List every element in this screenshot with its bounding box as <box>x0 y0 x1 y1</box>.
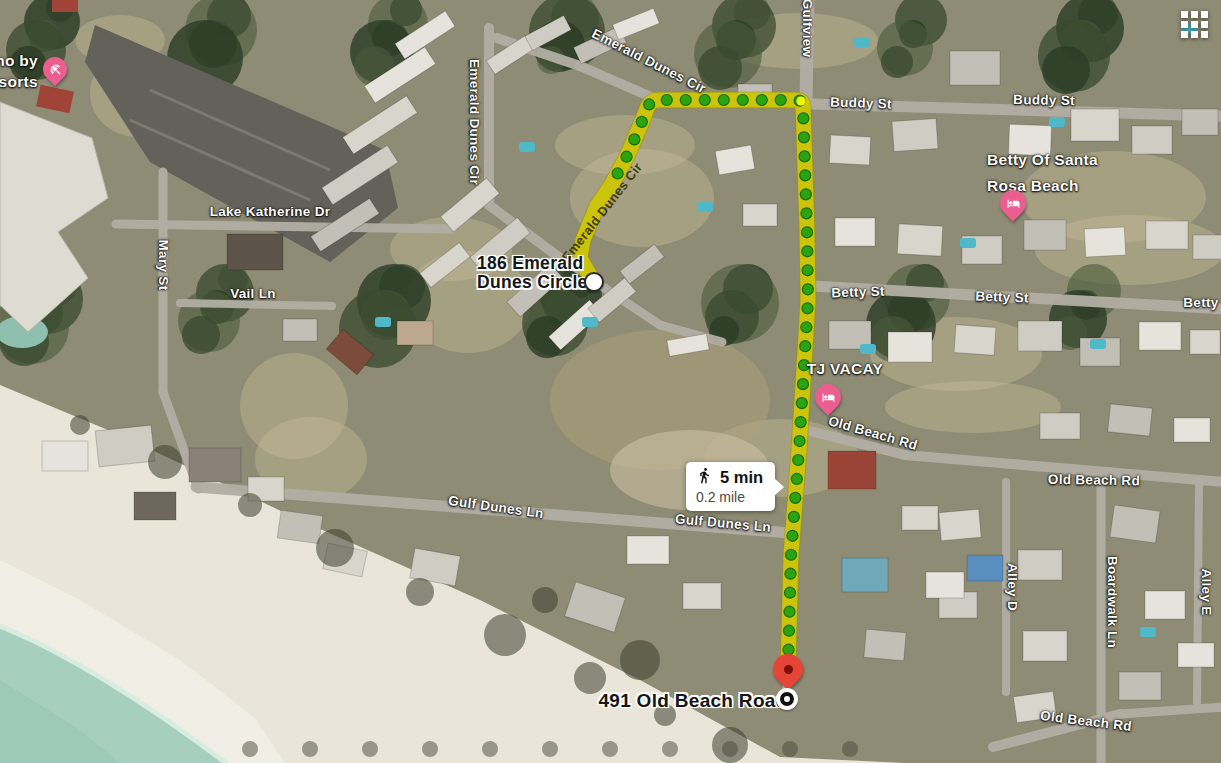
street-label-alley-e: Alley E <box>1199 568 1214 615</box>
origin-address-line1: 186 Emerald <box>477 254 588 273</box>
street-label-boardwalk-ln: Boardwalk Ln <box>1105 556 1120 648</box>
pin-hole <box>773 654 803 684</box>
resort-pin[interactable] <box>38 52 72 86</box>
route-duration: 5 min <box>720 468 763 487</box>
place-label-tj-vacay: TJ VACAY <box>807 356 883 382</box>
beach-umbrella-icon <box>43 57 67 81</box>
street-label-emerald-dunes-cir-left: Emerald Dunes Cir <box>467 59 482 185</box>
destination-pin[interactable] <box>767 648 809 690</box>
street-label-betty-st-east: Betty St <box>1183 295 1221 310</box>
walking-route-overlay <box>0 0 1221 763</box>
street-label-betty-st-mid: Betty St <box>975 289 1029 306</box>
origin-address-label: 186 Emerald Dunes Circle <box>477 254 588 292</box>
origin-marker-circle[interactable] <box>584 272 604 292</box>
walking-person-icon <box>696 467 713 488</box>
street-label-buddy-st-west: Buddy St <box>830 94 892 111</box>
destination-target-circle[interactable] <box>776 688 798 710</box>
street-label-vail-ln: Vail Ln <box>230 286 276 301</box>
satellite-map[interactable]: Emerald Dunes Cir Emerald Dunes Cir Emer… <box>0 0 1221 763</box>
resort-label-line2: sorts <box>0 71 38 92</box>
street-label-buddy-st-east: Buddy St <box>1013 92 1075 108</box>
street-label-lake-katherine-dr: Lake Katherine Dr <box>210 204 331 219</box>
route-distance: 0.2 mile <box>696 489 763 505</box>
street-label-gulfview: Gulfview <box>800 0 815 57</box>
tj-vacay-lodging-pin[interactable] <box>810 379 847 416</box>
bed-icon <box>815 384 841 410</box>
betty-of-santa-rosa-lodging-pin[interactable] <box>995 185 1032 222</box>
resort-label-line1: no by <box>0 50 38 71</box>
place-label-resort-truncated: no by sorts <box>0 50 38 92</box>
origin-address-line2: Dunes Circle <box>477 273 588 292</box>
bed-icon <box>1000 190 1026 216</box>
street-label-betty-st-west: Betty St <box>831 284 885 301</box>
target-inner-ring <box>780 692 794 706</box>
betty-of-santa-line1: Betty Of Santa <box>987 147 1098 173</box>
apps-grid-icon[interactable] <box>1181 11 1208 38</box>
street-label-old-beach-rd-east: Old Beach Rd <box>1048 472 1140 489</box>
street-label-mary-st: Mary St <box>156 240 171 291</box>
route-info-bubble[interactable]: 5 min 0.2 mile <box>686 462 775 511</box>
destination-address-label: 491 Old Beach Road <box>598 691 787 710</box>
street-label-alley-d: Alley D <box>1005 563 1020 611</box>
